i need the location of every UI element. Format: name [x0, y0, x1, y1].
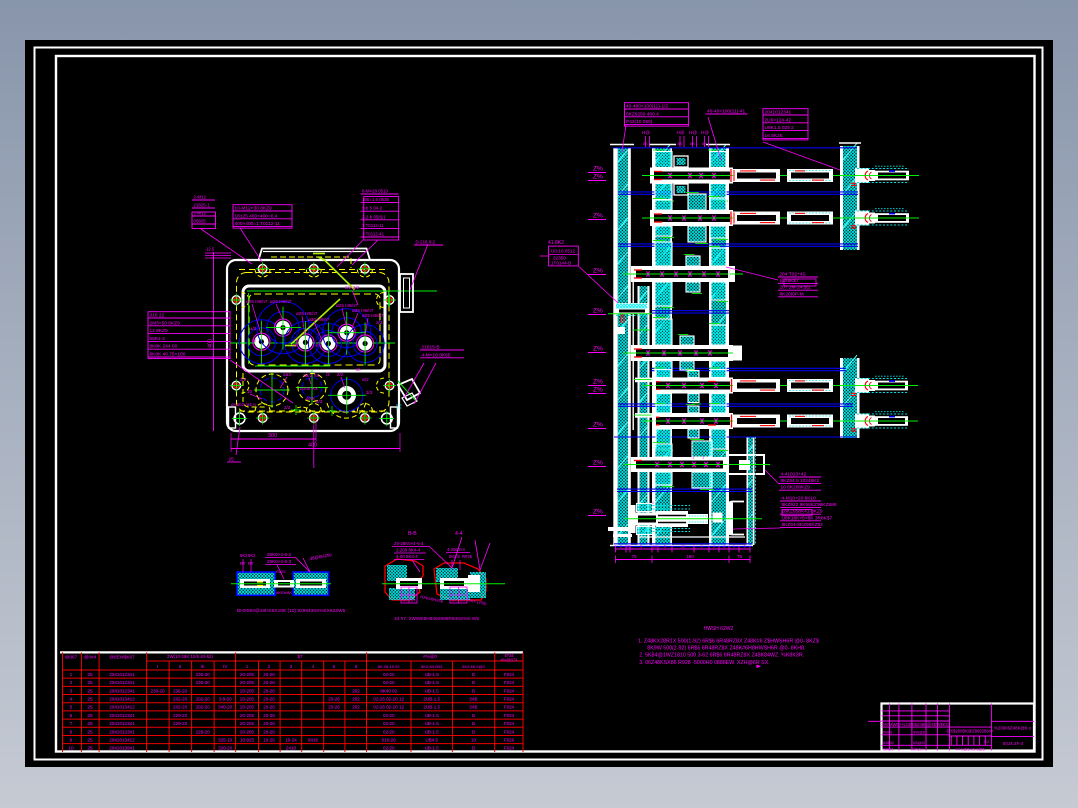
svg-text:0: 0	[733, 545, 735, 549]
svg-text:R#25: R#25	[276, 569, 286, 574]
svg-text:44 1@$ 09 1@$: 44 1@$ 09 1@$	[955, 747, 985, 752]
svg-text:88EW: 88EW	[883, 740, 894, 745]
svg-text:400: 400	[208, 339, 214, 348]
svg-text:ø/-: ø/-	[356, 367, 362, 372]
svg-text:2/2: 2/2	[240, 377, 247, 382]
svg-text:02-20: 02-20	[383, 680, 395, 685]
svg-text:25: 25	[87, 729, 93, 735]
svg-text:9: 9	[700, 545, 702, 549]
svg-text:8K: 8K	[690, 142, 695, 146]
svg-text:2-M12: 2-M12	[194, 195, 207, 200]
svg-text:I: I	[357, 343, 358, 348]
svg-text:20-205: 20-205	[240, 729, 255, 734]
svg-text:8K2-63 0B3: 8K2-63 0B3	[421, 664, 443, 669]
svg-text:Z%: Z%	[593, 166, 603, 173]
svg-text:202: 202	[352, 688, 360, 693]
svg-text:3: 3	[70, 688, 73, 694]
svg-text:B: B	[472, 721, 475, 726]
svg-text:202-20: 202-20	[196, 697, 211, 702]
svg-text:2041012341: 2041012341	[109, 672, 135, 677]
svg-text:Z%: Z%	[593, 213, 603, 220]
svg-text:D-218 8-2: D-218 8-2	[416, 240, 436, 245]
svg-text:02-26 02-20 12: 02-26 02-20 12	[373, 705, 404, 710]
svg-text:20-205: 20-205	[240, 705, 255, 710]
svg-text:F024: F024	[504, 672, 515, 677]
svg-text:SRX6: SRX6	[883, 746, 894, 751]
svg-text:8X: 8X	[403, 599, 408, 603]
svg-text:B: B	[472, 729, 475, 734]
svg-text:±/2: ±/2	[250, 326, 257, 331]
svg-text:H@: H@	[677, 130, 685, 135]
svg-text:UB-1.5: UB-1.5	[425, 680, 440, 685]
svg-text:25: 25	[87, 680, 93, 686]
svg-text:230-20: 230-20	[151, 688, 166, 693]
svg-text:R#25: R#25	[462, 554, 473, 559]
svg-text:R2: R2	[984, 739, 990, 744]
svg-text:U0-16 0512: U0-16 0512	[551, 249, 575, 254]
svg-text:180: 180	[686, 554, 694, 559]
svg-text:20-205: 20-205	[240, 680, 255, 685]
svg-text:02-20: 02-20	[383, 746, 395, 751]
svg-text:UB-1.5: UB-1.5	[425, 688, 440, 693]
svg-text:25: 25	[87, 721, 93, 727]
svg-text:Z%: Z%	[593, 460, 603, 467]
svg-text:20-205: 20-205	[240, 713, 255, 718]
svg-text:1T0144-B: 1T0144-B	[551, 261, 571, 266]
svg-text:2W(10-28K 10/6 40-62): 2W(10-28K 10/6 40-62)	[167, 654, 213, 659]
svg-text:8X: 8X	[452, 599, 457, 603]
svg-text:20-26: 20-26	[263, 672, 275, 677]
svg-text:7M7MWE×%23906Z48K@6EW$K67: 7M7MWE×%23906Z48K@6EW$K67	[881, 722, 951, 727]
svg-text:229-20: 229-20	[196, 729, 211, 734]
svg-text:24B: 24B	[469, 705, 477, 710]
svg-text:2/2 2/2: 2/2 2/2	[345, 285, 359, 290]
svg-text:20-26: 20-26	[263, 713, 275, 718]
svg-text:Z%: Z%	[593, 346, 603, 353]
svg-text:02-26 02-20 12: 02-26 02-20 12	[373, 697, 404, 702]
svg-text:236-20: 236-20	[196, 672, 211, 677]
svg-text:2-M12: 2-M12	[194, 211, 207, 216]
svg-text:Z%: Z%	[593, 379, 603, 386]
svg-text:F024: F024	[504, 746, 515, 751]
svg-text:2. 5K84@1WZ1810 500 3-62 6R$6: 2. 5K84@1WZ1810 500 3-62 6R$6 6R48RZ8X Z…	[639, 653, 804, 659]
svg-text:02-20: 02-20	[383, 672, 395, 677]
svg-text:8-M×20 0510: 8-M×20 0510	[362, 189, 389, 194]
svg-text:5-b 5 04-2: 5-b 5 04-2	[362, 206, 383, 211]
svg-text:Z%: Z%	[593, 422, 603, 429]
svg-text:#5@M: #5@M	[913, 740, 925, 745]
svg-text:236-20: 236-20	[196, 680, 211, 685]
svg-text:02-20: 02-20	[383, 729, 395, 734]
svg-text:340-20: 340-20	[218, 705, 233, 710]
svg-text:25: 25	[87, 697, 93, 703]
svg-text:2UB-1.5: 2UB-1.5	[423, 697, 440, 702]
svg-text:UB4.5: UB4.5	[425, 737, 438, 742]
svg-text:3-8-20: 3-8-20	[219, 697, 233, 702]
svg-text:B: B	[472, 680, 475, 685]
svg-text:UB-1.5: UB-1.5	[425, 713, 440, 718]
svg-text:ø105 XX: ø105 XX	[300, 386, 318, 391]
svg-text:2/2: 2/2	[284, 405, 291, 410]
svg-text:10-26: 10-26	[263, 737, 275, 742]
svg-text:2041013412: 2041013412	[109, 697, 135, 702]
svg-text:F024: F024	[504, 721, 515, 726]
svg-text:25: 25	[87, 705, 93, 711]
svg-text:1 T0112-41: 1 T0112-41	[362, 232, 385, 237]
svg-text:ø/2: ø/2	[362, 377, 369, 382]
svg-text:20-26: 20-26	[328, 697, 340, 702]
svg-text:4-00 8K4-4: 4-00 8K4-4	[396, 554, 418, 559]
svg-text:010-26: 010-26	[382, 737, 397, 742]
svg-text:BHX584@18HX5X10E (10) 9299436S: BHX584@18HX5X10E (10) 9299436S%KX62ZW5	[237, 608, 346, 614]
svg-text:25: 25	[87, 713, 93, 719]
svg-text:F024: F024	[504, 688, 515, 693]
svg-text:F024: F024	[504, 729, 515, 734]
svg-text:ø×402 /ø1 n: ø×402 /ø1 n	[231, 402, 256, 407]
svg-text:Z%: Z%	[593, 387, 603, 394]
svg-text:202-20: 202-20	[196, 705, 211, 710]
svg-text:8K2/2: 8K2/2	[449, 554, 461, 559]
svg-text:I: I	[157, 664, 158, 669]
svg-text:8K2: 8K2	[248, 553, 256, 558]
svg-text:4-2500×4: 4-2500×4	[447, 547, 465, 552]
svg-text:UB-1.5: UB-1.5	[425, 746, 440, 751]
svg-text:5: 5	[620, 545, 622, 549]
svg-text:2041013412: 2041013412	[109, 737, 135, 742]
svg-text:20-26: 20-26	[263, 680, 275, 685]
svg-text:B: B	[472, 688, 475, 693]
svg-text:II: II	[316, 343, 319, 348]
svg-text:28K0×4-6-2: 28K0×4-6-2	[267, 552, 292, 557]
svg-text:34 #7. 2WWE8H8492996R846S%K W5: 34 #7. 2WWE8H8492996R846S%K W5	[394, 616, 479, 622]
svg-text:15: 15	[681, 545, 685, 549]
svg-text:2UB-1.5: 2UB-1.5	[423, 705, 440, 710]
svg-text:5: 5	[743, 545, 745, 549]
svg-text:ø25 H8/n7: ø25 H8/n7	[296, 311, 318, 316]
svg-text:2041012341: 2041012341	[109, 680, 135, 685]
svg-text:@067: @067	[65, 655, 78, 660]
svg-text:@6EW$K67: @6EW$K67	[109, 655, 135, 660]
svg-text:2: 2	[403, 591, 405, 595]
svg-text:8X: 8X	[461, 599, 466, 603]
svg-text:B: B	[472, 672, 475, 677]
svg-text:%23906Z48K@6 o: %23906Z48K@6 o	[994, 726, 1032, 731]
svg-text:25: 25	[87, 688, 93, 694]
svg-text:2/3: 2/3	[366, 390, 373, 395]
svg-text:75: 75	[737, 554, 743, 559]
svg-text:2: 2	[411, 591, 413, 595]
svg-text:B: B	[472, 746, 475, 751]
svg-text:2: 2	[452, 591, 454, 595]
svg-text:2041012341: 2041012341	[109, 729, 135, 734]
svg-text:10: 10	[247, 389, 253, 394]
svg-text:6: 6	[70, 713, 73, 719]
svg-text:6: 6	[723, 545, 725, 549]
svg-text:@6$280BK@Z869288××: @6$280BK@Z869288××	[946, 729, 994, 734]
svg-text:20-26: 20-26	[263, 705, 275, 710]
svg-text:2/3: 2/3	[316, 399, 323, 404]
svg-text:8K: 8K	[643, 142, 648, 146]
svg-text:0B96: 0B96	[883, 730, 893, 735]
svg-text:229-20: 229-20	[173, 721, 188, 726]
svg-text:H@: H@	[642, 130, 650, 135]
svg-text:ø30 H8/n7: ø30 H8/n7	[308, 317, 330, 322]
svg-text:202-20: 202-20	[173, 697, 188, 702]
svg-text:9W@6: 9W@6	[913, 730, 926, 735]
svg-text:20-205: 20-205	[240, 688, 255, 693]
svg-text:20-205: 20-205	[240, 672, 255, 677]
svg-text:10-24: 10-24	[285, 737, 297, 742]
svg-text:28K0×4-6-3: 28K0×4-6-3	[267, 559, 292, 564]
svg-text:H@: H@	[689, 130, 697, 135]
svg-text:202-20: 202-20	[173, 705, 188, 710]
svg-text:00J4.2F-4: 00J4.2F-4	[1003, 741, 1024, 746]
svg-text:2: 2	[70, 680, 73, 686]
svg-text:B-B: B-B	[408, 531, 417, 537]
svg-text:R#: R#	[240, 561, 246, 566]
svg-text:75: 75	[631, 554, 637, 559]
svg-text:ø25 H8/n7: ø25 H8/n7	[246, 299, 268, 304]
svg-text:Z%: Z%	[593, 268, 603, 275]
svg-text:øXX: øXX	[306, 396, 315, 401]
svg-text:202: 202	[352, 697, 360, 702]
svg-text:1 T0112-11: 1 T0112-11	[362, 223, 384, 228]
svg-text:26-28K0×4-6-4: 26-28K0×4-6-4	[394, 541, 424, 546]
svg-text:41 8K2: 41 8K2	[548, 240, 564, 246]
svg-text:400: 400	[308, 443, 317, 449]
svg-text:8K: 8K	[702, 142, 707, 146]
svg-text:4: 4	[70, 697, 73, 703]
svg-text:20-26: 20-26	[263, 721, 275, 726]
svg-text:UB-1.5: UB-1.5	[425, 672, 440, 677]
svg-text:Z%: Z%	[593, 308, 603, 315]
svg-text:@0#4: @0#4	[84, 655, 97, 660]
svg-text:2/2: 2/2	[337, 372, 344, 377]
svg-text:F024: F024	[504, 697, 515, 702]
svg-text:8: 8	[70, 729, 73, 735]
svg-text:20-26: 20-26	[328, 705, 340, 710]
svg-text:2041012341: 2041012341	[109, 713, 135, 718]
svg-text:8K9W 500(2-92) 6R$6 6R48RZ8X Z: 8K9W 500(2-92) 6R$6 6R48RZ8X Z48K#6H8HWS…	[647, 646, 805, 652]
svg-text:8K: 8K	[678, 142, 683, 146]
svg-text:1: 1	[70, 672, 73, 678]
svg-text:B: B	[472, 713, 475, 718]
svg-text:8K2-66 2@3: 8K2-66 2@3	[462, 664, 485, 669]
svg-text:325-10: 325-10	[218, 737, 233, 742]
svg-text:Z%: Z%	[593, 174, 603, 181]
svg-text:III: III	[252, 338, 256, 343]
svg-text:ø25 H8/n7: ø25 H8/n7	[362, 313, 384, 318]
svg-text:1. Z48KX28R1X 500(1-92) 6R$6: 1. Z48KX28R1X 500(1-92) 6R$6 6R48RZ8X Z4…	[638, 638, 819, 644]
svg-text:UB-1.5: UB-1.5	[425, 729, 440, 734]
svg-text:320-20: 320-20	[218, 746, 233, 751]
svg-text:10-925: 10-925	[240, 737, 255, 742]
svg-text:II: II	[179, 664, 182, 669]
svg-text:25: 25	[87, 737, 93, 743]
svg-text:25: 25	[87, 746, 93, 752]
svg-text:8KR#/8K: 8KR#/8K	[276, 590, 292, 595]
svg-text:7: 7	[70, 721, 73, 727]
svg-text:/2: /2	[326, 372, 330, 377]
svg-text:#%@074: #%@074	[500, 658, 518, 663]
svg-text:F024: F024	[504, 705, 515, 710]
svg-text:236-20: 236-20	[173, 688, 188, 693]
svg-text:2041013841: 2041013841	[109, 746, 135, 751]
svg-text:4-4: 4-4	[455, 531, 463, 537]
svg-text:10: 10	[653, 545, 657, 549]
svg-text:100=1.5 0535: 100=1.5 0535	[362, 197, 390, 202]
svg-text:2/2: 2/2	[376, 320, 383, 325]
svg-text:05825: 05825	[194, 219, 207, 224]
svg-text:5: 5	[640, 545, 642, 549]
svg-text:15: 15	[626, 545, 630, 549]
svg-text:5: 5	[70, 705, 73, 711]
svg-text:20-26: 20-26	[263, 729, 275, 734]
svg-text:HWSH 62W2: HWSH 62W2	[704, 626, 734, 632]
svg-text:25: 25	[87, 672, 93, 678]
svg-text:2-2-b 05821: 2-2-b 05821	[362, 214, 386, 219]
svg-text:2-200 8K4-4: 2-200 8K4-4	[396, 548, 421, 553]
svg-text:UB-1.5: UB-1.5	[425, 721, 440, 726]
svg-text:ø25 H8/n7: ø25 H8/n7	[270, 299, 292, 304]
svg-text:5: 5	[664, 545, 666, 549]
svg-text:300: 300	[268, 433, 277, 439]
svg-text:9: 9	[70, 737, 73, 743]
svg-text:F024: F024	[504, 680, 515, 685]
svg-text:8X: 8X	[411, 599, 416, 603]
svg-text:10: 10	[471, 737, 477, 742]
svg-text:8K2: 8K2	[240, 553, 248, 558]
svg-text:III: III	[201, 664, 205, 669]
svg-text:#RZH: #RZH	[913, 746, 924, 751]
svg-text:H@: H@	[701, 130, 709, 135]
svg-text:0: 0	[713, 545, 715, 549]
svg-text:12.5: 12.5	[206, 247, 215, 252]
svg-text:02-20: 02-20	[383, 713, 395, 718]
svg-text:#%@0: #%@0	[423, 654, 437, 659]
svg-text:20-205: 20-205	[240, 721, 255, 726]
svg-text:21825-1: 21825-1	[194, 203, 211, 208]
svg-text:20-205: 20-205	[240, 697, 255, 702]
svg-text:3. 06Z48KSX86 R928 -5000H0 08: 3. 06Z48KSX86 R928 -5000H0 0888EW. XZH@6…	[639, 660, 770, 666]
svg-text:202: 202	[352, 705, 360, 710]
svg-text:8K 06-15 02: 8K 06-15 02	[378, 664, 401, 669]
svg-text:2041013412: 2041013412	[109, 705, 135, 710]
svg-text:F026: F026	[504, 737, 515, 742]
svg-text:F024: F024	[504, 713, 515, 718]
svg-text:2ø2-: 2ø2-	[283, 372, 293, 377]
svg-text:2041012341: 2041012341	[109, 721, 135, 726]
svg-text:2041012341: 2041012341	[109, 688, 135, 693]
svg-text:2: 2	[461, 591, 463, 595]
svg-text:24B: 24B	[469, 697, 477, 702]
svg-text:8K40 02: 8K40 02	[380, 688, 397, 693]
svg-text:R#: R#	[248, 561, 254, 566]
svg-text:3ø/2 XX: 3ø/2 XX	[303, 373, 320, 378]
svg-text:2410: 2410	[286, 746, 297, 751]
svg-text:10: 10	[68, 746, 74, 752]
svg-text:8416: 8416	[308, 737, 319, 742]
svg-text:02-20: 02-20	[383, 721, 395, 726]
svg-text:20-26: 20-26	[263, 697, 275, 702]
svg-text:20-26: 20-26	[263, 688, 275, 693]
svg-text:III: III	[293, 343, 297, 348]
svg-text:Z%: Z%	[593, 509, 603, 516]
svg-text:229-20: 229-20	[173, 713, 188, 718]
svg-text:$7: $7	[297, 654, 303, 659]
